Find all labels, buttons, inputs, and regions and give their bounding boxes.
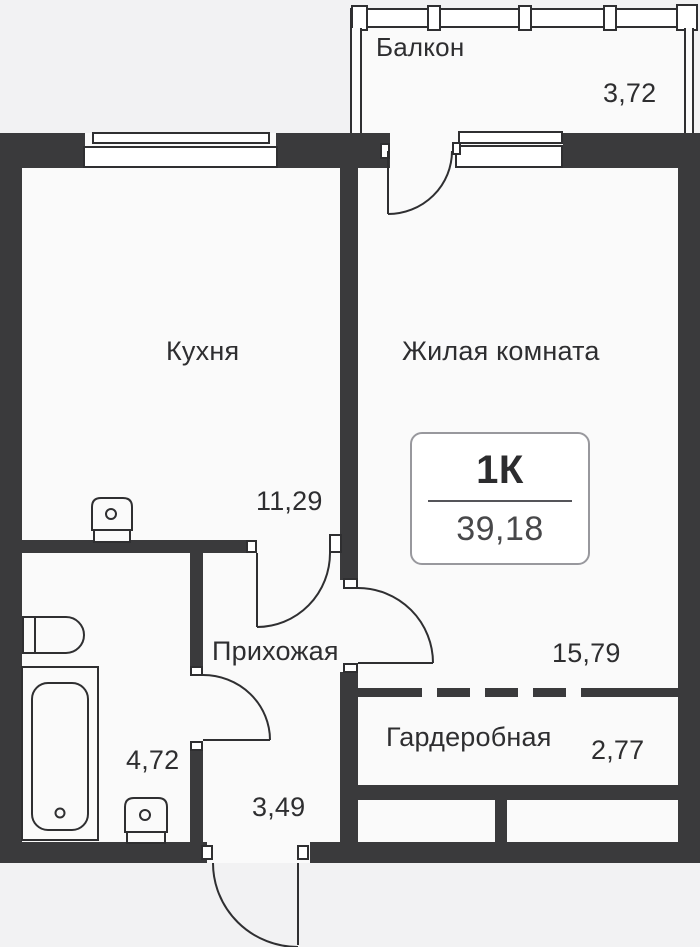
hallway-label: Прихожая: [212, 637, 339, 667]
bathroom-sink-icon: [140, 810, 150, 820]
kitchen-label: Кухня: [166, 337, 239, 367]
bathtub-drain: [56, 809, 65, 818]
badge-divider: [428, 500, 572, 502]
kitchen-door: [257, 553, 330, 627]
living-label: Жилая комната: [402, 337, 600, 367]
apartment-type: 1К: [476, 448, 524, 493]
balcony-door: [388, 151, 452, 214]
balcony-area: 3,72: [603, 79, 656, 109]
bathroom-sink-icon: [127, 832, 165, 843]
kitchen-sink-icon: [94, 530, 130, 542]
kitchen-sink-icon: [106, 509, 116, 519]
toilet-icon: [23, 617, 35, 653]
apartment-type-badge: 1К 39,18: [410, 432, 590, 565]
wardrobe-label: Гардеробная: [386, 723, 552, 753]
bathroom-door: [203, 675, 270, 740]
doors-and-fixtures-layer: [0, 0, 700, 947]
kitchen-area: 11,29: [256, 487, 323, 517]
living-room-door: [358, 588, 433, 663]
floor-plan: Балкон 3,72 Кухня Жилая комната 11,29 Пр…: [0, 0, 700, 947]
apartment-total-area: 39,18: [456, 510, 544, 549]
living-area: 15,79: [552, 639, 621, 669]
hallway-area: 3,49: [252, 793, 305, 823]
bathroom-area: 4,72: [126, 746, 179, 776]
toilet-icon: [35, 617, 84, 653]
balcony-label: Балкон: [376, 33, 464, 62]
entrance-door: [213, 863, 298, 947]
wardrobe-area: 2,77: [591, 736, 644, 766]
